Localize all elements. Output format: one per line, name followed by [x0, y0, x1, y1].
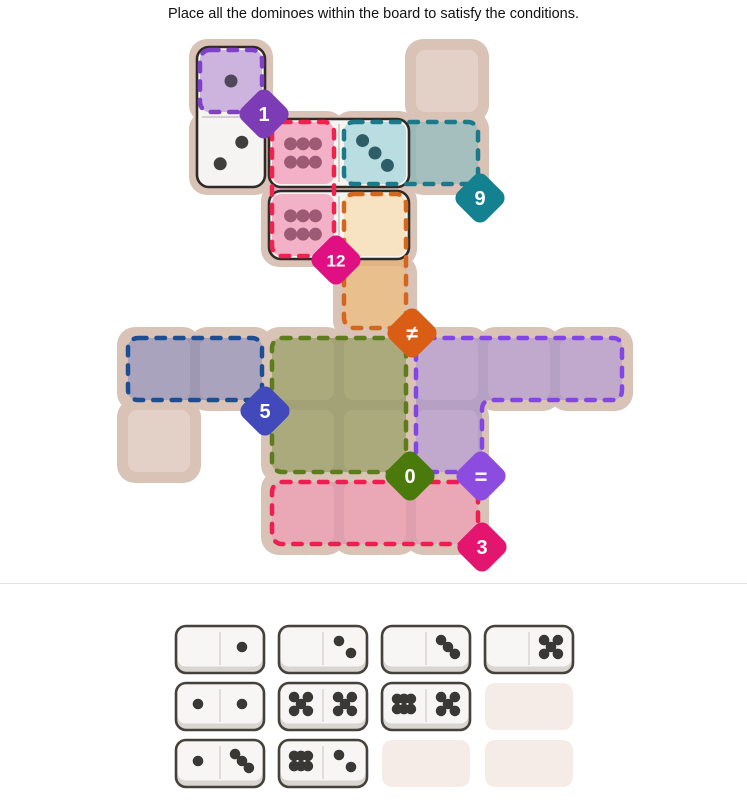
pip: [406, 694, 417, 705]
tray-domino-5-5[interactable]: [279, 683, 367, 730]
pip: [237, 642, 248, 653]
pip: [309, 156, 322, 169]
tray-empty-slot: [485, 683, 573, 730]
board-cell-c1r1[interactable]: [200, 122, 262, 184]
tray-empty-slot: [485, 740, 573, 787]
badge-label: 12: [327, 252, 346, 271]
board-cell-c4r1[interactable]: [416, 122, 478, 184]
pip: [333, 706, 344, 717]
tray-domino-0-2[interactable]: [279, 626, 367, 673]
board-cell-c1r4[interactable]: [200, 338, 262, 400]
board-cell-c0r5[interactable]: [128, 410, 190, 472]
pip: [284, 137, 297, 150]
pip: [289, 706, 300, 717]
tray-domino-0-3[interactable]: [382, 626, 470, 673]
puzzle-board: 1129≠50=3: [0, 0, 747, 580]
board-cell-c3r3[interactable]: [344, 266, 406, 328]
pip: [539, 649, 550, 660]
pip: [346, 762, 357, 773]
pip: [297, 156, 310, 169]
board-cell-c3r2[interactable]: [344, 194, 406, 256]
pip: [297, 228, 310, 241]
pip: [303, 751, 314, 762]
pip: [309, 209, 322, 222]
board-cell-c2r1[interactable]: [272, 122, 334, 184]
board-cell-c4r0[interactable]: [416, 50, 478, 112]
pip: [297, 137, 310, 150]
board-cell-c3r4[interactable]: [344, 338, 406, 400]
pip: [369, 147, 382, 160]
pip: [309, 228, 322, 241]
tray-domino-1-3[interactable]: [176, 740, 264, 787]
badge-label: 0: [404, 466, 415, 488]
pip: [553, 649, 564, 660]
badge-label: =: [475, 465, 488, 490]
pip: [450, 649, 461, 660]
board-cell-c0r4[interactable]: [128, 338, 190, 400]
badge-label: 9: [474, 188, 485, 210]
pip: [284, 156, 297, 169]
board-cell-c6r4[interactable]: [560, 338, 622, 400]
instructions-text: Place all the dominoes within the board …: [0, 6, 747, 22]
board-cell-c3r6[interactable]: [344, 482, 406, 544]
pip: [381, 159, 394, 172]
pip: [346, 648, 357, 659]
pip: [450, 706, 461, 717]
pip: [309, 137, 322, 150]
tray-domino-6-2[interactable]: [279, 740, 367, 787]
pip: [303, 706, 314, 717]
pip: [237, 699, 248, 710]
pip: [436, 706, 447, 717]
pips-puzzle-page: 1129≠50=3 Place all the dominoes within …: [0, 0, 747, 803]
pip: [244, 763, 255, 774]
board-tray-divider: [0, 583, 747, 584]
pip: [334, 750, 345, 761]
pip: [406, 704, 417, 715]
domino-tray: [0, 618, 747, 798]
pip: [297, 209, 310, 222]
badge-label: 1: [258, 104, 269, 126]
tray-domino-6-5[interactable]: [382, 683, 470, 730]
pip: [284, 209, 297, 222]
pip: [193, 756, 204, 767]
pip: [225, 75, 238, 88]
badge-label: 5: [259, 401, 270, 423]
pip: [334, 636, 345, 647]
pip: [284, 228, 297, 241]
pip: [356, 134, 369, 147]
pip: [347, 706, 358, 717]
board-cell-c2r6[interactable]: [272, 482, 334, 544]
tray-domino-1-1[interactable]: [176, 683, 264, 730]
badge-label: ≠: [406, 323, 418, 346]
pip: [235, 136, 248, 149]
badge-label: 3: [476, 537, 487, 559]
tray-domino-0-5[interactable]: [485, 626, 573, 673]
pip: [214, 157, 227, 170]
tray-empty-slot: [382, 740, 470, 787]
tray-domino-0-1[interactable]: [176, 626, 264, 673]
pip: [193, 699, 204, 710]
pip: [303, 761, 314, 772]
board-cell-c5r4[interactable]: [488, 338, 550, 400]
board-cell-c2r4[interactable]: [272, 338, 334, 400]
